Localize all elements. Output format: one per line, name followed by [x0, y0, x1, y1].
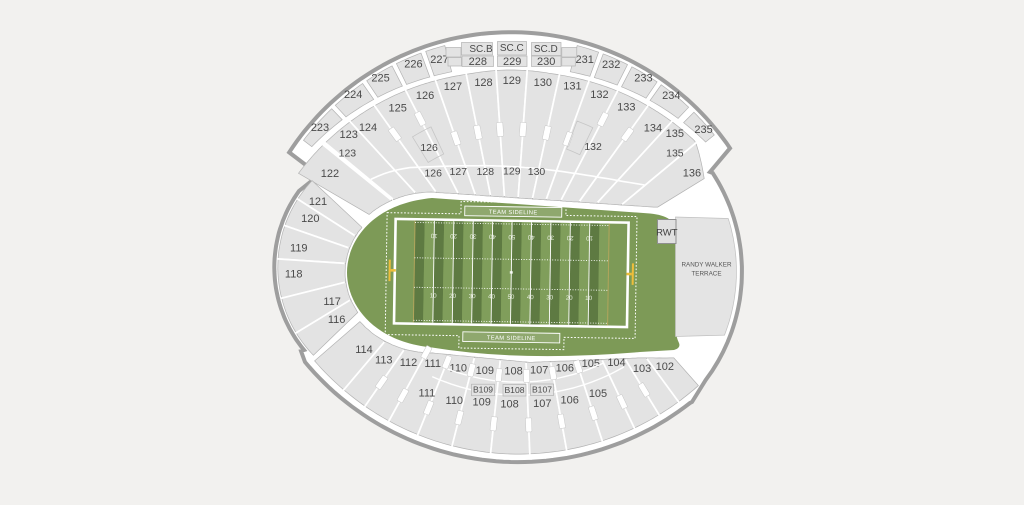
svg-text:B109: B109: [473, 385, 493, 395]
svg-text:20: 20: [450, 232, 458, 239]
svg-text:B107: B107: [532, 384, 552, 394]
svg-text:133: 133: [617, 102, 635, 114]
svg-text:230: 230: [537, 56, 555, 68]
svg-text:RWT: RWT: [656, 228, 678, 239]
svg-text:20: 20: [566, 234, 574, 241]
svg-text:SC.B: SC.B: [469, 44, 493, 55]
svg-text:232: 232: [602, 59, 620, 71]
svg-text:20: 20: [566, 295, 574, 302]
svg-text:113: 113: [375, 355, 393, 367]
svg-text:125: 125: [389, 102, 407, 114]
svg-text:10: 10: [430, 232, 438, 239]
svg-text:10: 10: [586, 234, 594, 241]
svg-text:123: 123: [340, 129, 358, 141]
svg-text:228: 228: [469, 56, 487, 68]
svg-text:130: 130: [534, 77, 552, 89]
svg-text:132: 132: [590, 89, 608, 101]
svg-text:111: 111: [419, 387, 436, 399]
svg-text:129: 129: [503, 75, 521, 87]
svg-text:131: 131: [563, 80, 581, 92]
svg-text:108: 108: [504, 365, 522, 377]
svg-text:TERRACE: TERRACE: [691, 271, 721, 278]
svg-text:132: 132: [584, 141, 602, 153]
svg-text:106: 106: [561, 395, 579, 407]
svg-text:126: 126: [420, 142, 438, 154]
svg-text:20: 20: [449, 293, 457, 300]
svg-text:SC.C: SC.C: [500, 43, 524, 54]
svg-text:135: 135: [666, 147, 684, 159]
svg-text:40: 40: [527, 294, 535, 301]
svg-text:223: 223: [311, 122, 329, 134]
svg-text:129: 129: [503, 166, 521, 178]
svg-text:136: 136: [683, 168, 701, 180]
svg-text:116: 116: [328, 314, 346, 326]
svg-text:127: 127: [450, 166, 468, 178]
svg-text:RANDY WALKER: RANDY WALKER: [681, 262, 731, 269]
svg-text:234: 234: [662, 90, 680, 102]
svg-text:127: 127: [444, 81, 462, 93]
svg-text:109: 109: [476, 365, 494, 377]
svg-text:114: 114: [355, 344, 373, 356]
svg-text:231: 231: [576, 54, 594, 66]
svg-text:122: 122: [321, 168, 339, 180]
svg-text:225: 225: [371, 72, 389, 84]
svg-text:128: 128: [474, 77, 492, 89]
svg-text:30: 30: [469, 232, 477, 239]
svg-text:128: 128: [477, 166, 495, 178]
svg-text:50: 50: [508, 233, 516, 240]
svg-text:119: 119: [290, 242, 308, 254]
svg-text:112: 112: [400, 357, 418, 369]
svg-text:123: 123: [339, 148, 357, 160]
svg-text:233: 233: [634, 72, 652, 84]
svg-text:118: 118: [285, 269, 303, 281]
svg-text:121: 121: [309, 196, 327, 208]
svg-text:235: 235: [694, 124, 712, 136]
svg-text:TEAM SIDELINE: TEAM SIDELINE: [487, 335, 536, 342]
svg-text:103: 103: [633, 363, 651, 375]
svg-text:120: 120: [301, 213, 319, 225]
svg-text:107: 107: [533, 398, 551, 410]
svg-text:50: 50: [507, 294, 515, 301]
svg-text:SC.D: SC.D: [534, 44, 558, 55]
svg-text:30: 30: [546, 294, 554, 301]
svg-text:130: 130: [528, 166, 546, 178]
svg-text:135: 135: [666, 128, 684, 140]
svg-text:107: 107: [530, 365, 548, 377]
svg-text:229: 229: [503, 56, 521, 68]
svg-text:40: 40: [527, 233, 535, 240]
svg-text:B108: B108: [504, 385, 524, 395]
svg-text:TEAM SIDELINE: TEAM SIDELINE: [489, 210, 538, 217]
svg-text:111: 111: [424, 358, 441, 370]
svg-text:30: 30: [469, 293, 477, 300]
svg-text:108: 108: [500, 399, 518, 411]
svg-text:117: 117: [323, 296, 341, 308]
svg-text:106: 106: [556, 362, 574, 374]
svg-text:110: 110: [446, 395, 464, 407]
svg-text:134: 134: [644, 123, 662, 135]
svg-text:109: 109: [473, 396, 491, 408]
svg-text:30: 30: [547, 234, 555, 241]
svg-text:224: 224: [344, 89, 362, 101]
svg-text:126: 126: [424, 168, 442, 180]
svg-text:40: 40: [488, 233, 496, 240]
svg-text:124: 124: [359, 122, 377, 134]
svg-text:10: 10: [585, 295, 593, 302]
svg-text:102: 102: [656, 361, 674, 373]
svg-text:226: 226: [404, 59, 422, 71]
svg-text:105: 105: [589, 388, 607, 400]
svg-text:10: 10: [430, 293, 438, 300]
svg-text:40: 40: [488, 293, 496, 300]
svg-text:126: 126: [416, 90, 434, 102]
